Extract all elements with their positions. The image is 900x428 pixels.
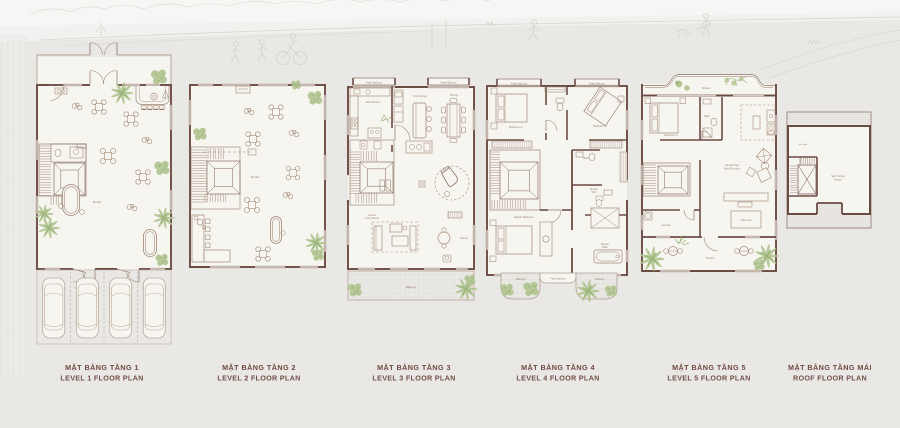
svg-text:False Balcony: False Balcony [440,80,457,84]
svg-text:Mái ngói: Mái ngói [799,144,808,146]
svg-text:Living Room: Living Room [365,216,379,220]
svg-text:Retail: Retail [93,200,101,204]
svg-text:Multi Function: Multi Function [724,166,741,170]
svg-text:MẶT BẰNG TẦNG 4: MẶT BẰNG TẦNG 4 [521,362,595,372]
svg-text:False Balcony: False Balcony [366,80,383,84]
svg-text:LEVEL 1 FLOOR PLAN: LEVEL 1 FLOOR PLAN [60,374,143,383]
svg-text:Terrace: Terrace [706,256,715,260]
svg-text:MẶT BẰNG TẦNG 3: MẶT BẰNG TẦNG 3 [377,362,451,372]
svg-text:Library: Library [460,236,469,240]
svg-text:MẶT BẰNG TẦNG 2: MẶT BẰNG TẦNG 2 [222,362,296,372]
svg-text:False Balcony: False Balcony [550,278,566,281]
svg-text:False Balcony: False Balcony [589,81,606,85]
svg-text:Bath: Bath [602,246,608,249]
svg-text:ROOF FLOOR PLAN: ROOF FLOOR PLAN [793,374,867,383]
svg-text:Balcony: Balcony [406,285,417,289]
svg-text:Dry Kitchen: Dry Kitchen [413,94,427,98]
svg-text:Master Bedroom: Master Bedroom [514,215,535,219]
svg-text:Laundry: Laundry [661,223,671,227]
svg-text:Retail: Retail [251,175,259,179]
svg-text:WIC: WIC [592,191,597,194]
svg-text:LEVEL 4 FLOOR PLAN: LEVEL 4 FLOOR PLAN [516,374,599,383]
svg-text:Wet Kitchen: Wet Kitchen [366,100,381,104]
svg-text:Balcony: Balcony [516,277,526,281]
svg-text:Terrace: Terrace [702,86,711,90]
svg-text:Dining: Dining [450,93,458,97]
svg-text:MẶT BẰNG TẦNG MÁI: MẶT BẰNG TẦNG MÁI [788,362,872,372]
svg-text:Family Area: Family Area [725,163,739,167]
svg-text:Bath: Bath [704,114,710,118]
svg-text:False Balcony: False Balcony [511,81,528,85]
svg-text:Bedroom 4: Bedroom 4 [664,133,678,137]
svg-text:MẶT BẰNG TẦNG 5: MẶT BẰNG TẦNG 5 [672,362,746,372]
svg-text:LEVEL 2 FLOOR PLAN: LEVEL 2 FLOOR PLAN [217,374,300,383]
svg-text:MẶT BẰNG TẦNG 1: MẶT BẰNG TẦNG 1 [65,362,139,372]
svg-text:LEVEL 5 FLOOR PLAN: LEVEL 5 FLOOR PLAN [667,374,750,383]
svg-text:Altar Area: Altar Area [741,219,753,222]
svg-text:Terrace: Terrace [834,178,843,181]
svg-text:Bedroom 3: Bedroom 3 [593,124,607,128]
svg-text:Bath: Bath [583,156,589,160]
svg-text:Bedroom 2: Bedroom 2 [509,125,523,129]
svg-text:Balcony: Balcony [595,277,605,281]
svg-text:LEVEL 3 FLOOR PLAN: LEVEL 3 FLOOR PLAN [372,374,455,383]
